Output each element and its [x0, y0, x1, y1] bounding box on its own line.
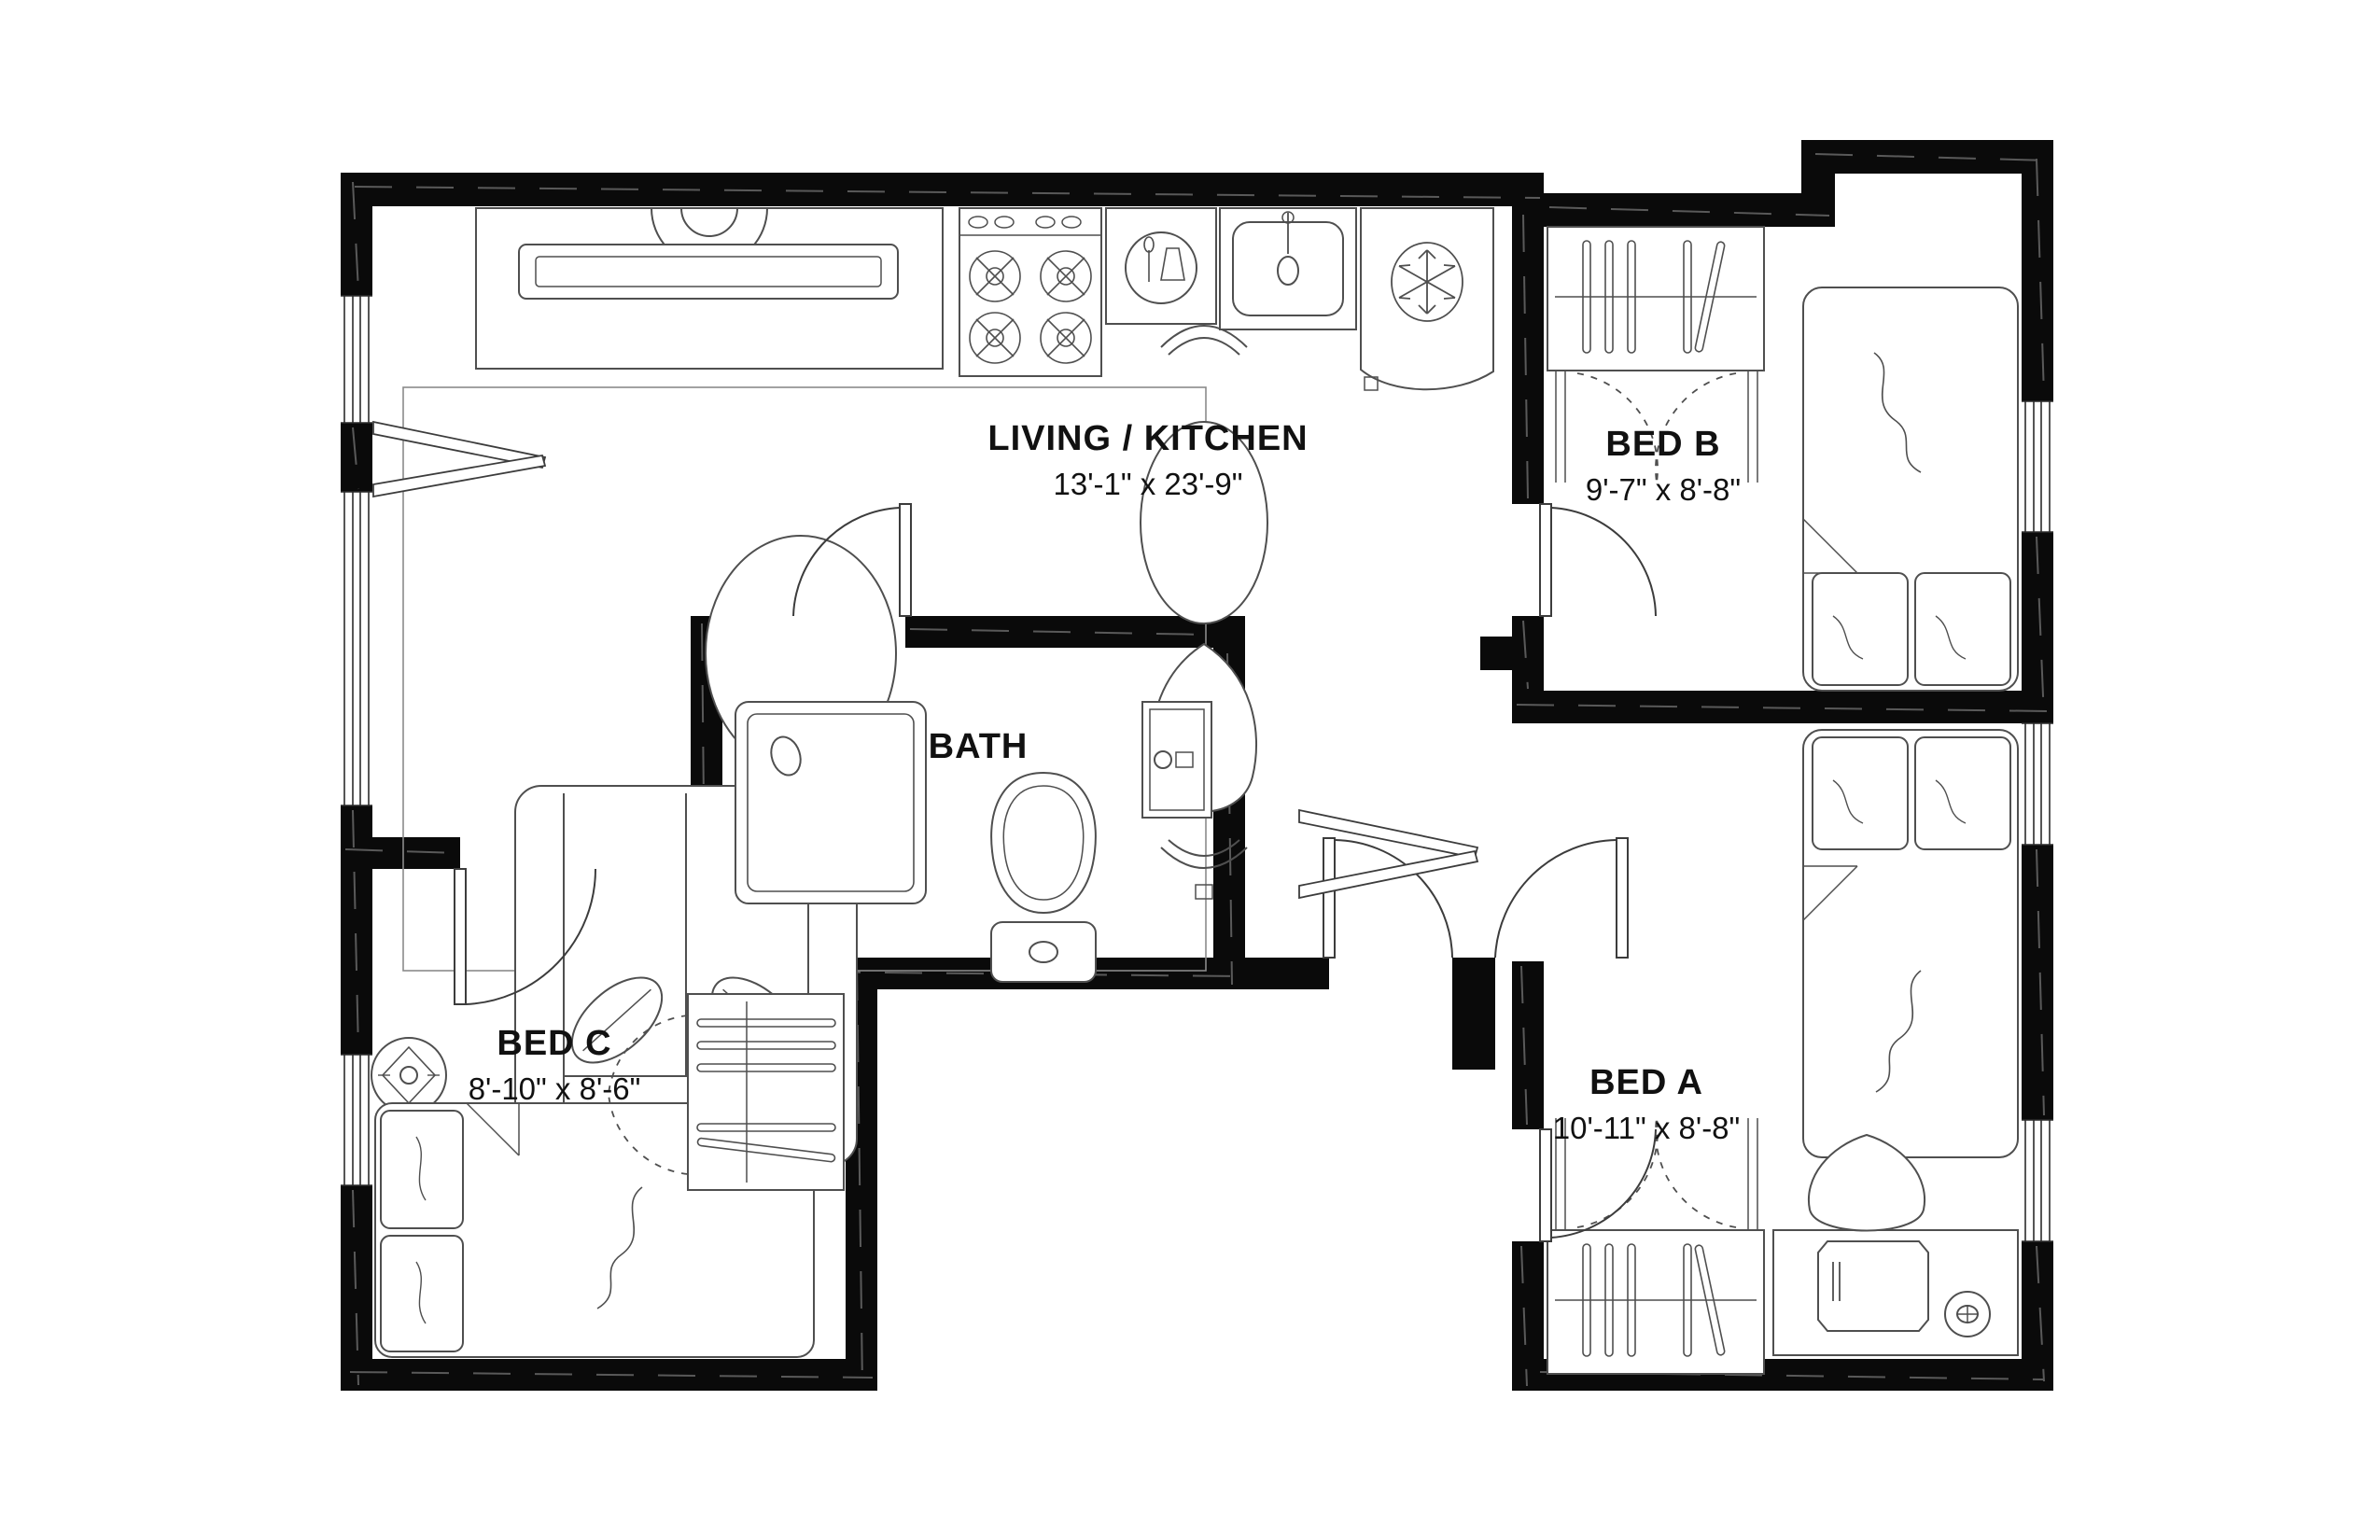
window-beda-2 [2022, 1120, 2053, 1241]
wall-bedb-west [1512, 206, 1544, 504]
ceiling-fan-icon [371, 1038, 446, 1113]
window-living-1 [341, 296, 372, 423]
floor-plan-page: LIVING / KITCHEN 13'-1" x 23'-9" BED B 9… [0, 0, 2380, 1540]
bed-b-label: BED B [1605, 425, 1720, 464]
bed-a-label: BED A [1589, 1063, 1703, 1102]
kitchen-sink [1220, 208, 1356, 329]
laptop [1818, 1241, 1928, 1331]
dishwasher [1106, 208, 1216, 324]
wall-top-main [341, 173, 1544, 206]
toilet [991, 773, 1096, 982]
bath-sink [1142, 702, 1211, 818]
beda-door [1540, 1129, 1656, 1241]
window-living-2 [341, 492, 372, 805]
window-beda-1 [2022, 723, 2053, 845]
living-kitchen-label: LIVING / KITCHEN [987, 419, 1308, 458]
desk [1773, 1135, 2018, 1355]
bed-c-label: BED C [497, 1024, 611, 1063]
beda-bed [1803, 730, 2018, 1157]
entry-door-right [1495, 838, 1628, 958]
wall-entry-pier [1452, 958, 1495, 1070]
floor-plan: LIVING / KITCHEN 13'-1" x 23'-9" BED B 9… [0, 0, 2380, 1540]
stove [959, 208, 1101, 376]
refrigerator [1361, 208, 1493, 390]
pillow [1915, 737, 2010, 849]
bath-label: BATH [929, 727, 1029, 766]
window-bedb [2022, 401, 2053, 532]
pillow [381, 1236, 463, 1351]
wall-beda-west-mid [1512, 961, 1544, 1129]
pillow [1915, 573, 2010, 685]
tv-console [476, 208, 943, 369]
shower [735, 702, 926, 903]
bed-b-dimensions: 9'-7" x 8'-8" [1586, 472, 1741, 507]
tv [519, 245, 898, 299]
wall-bedb-west-stub [1512, 616, 1544, 691]
bedb-door [1540, 504, 1656, 616]
wall-left-mullion [341, 423, 372, 492]
pillow [1813, 737, 1908, 849]
wall-left-top [341, 173, 372, 296]
beda-closet [1547, 1118, 1764, 1374]
window-bedc [341, 1055, 372, 1185]
wall-entry-stub-west [1245, 958, 1329, 989]
bed-c-dimensions: 8'-10" x 8'-6" [469, 1071, 641, 1106]
wall-top-right [1801, 140, 2053, 174]
wall-beda-west-low [1512, 1241, 1544, 1391]
entry-door-left [1323, 838, 1452, 958]
pillow [381, 1111, 463, 1228]
living-kitchen-room [403, 208, 1493, 1165]
wall-hall-stub [1480, 637, 1514, 670]
living-kitchen-dimensions: 13'-1" x 23'-9" [1054, 467, 1243, 501]
bed-a-room [1547, 730, 2018, 1374]
open-leaf-chevron-left-wall [373, 422, 545, 497]
pillow [1813, 573, 1908, 685]
bed-a-dimensions: 10'-11" x 8'-8" [1553, 1111, 1741, 1145]
bedb-bed [1803, 287, 2018, 691]
